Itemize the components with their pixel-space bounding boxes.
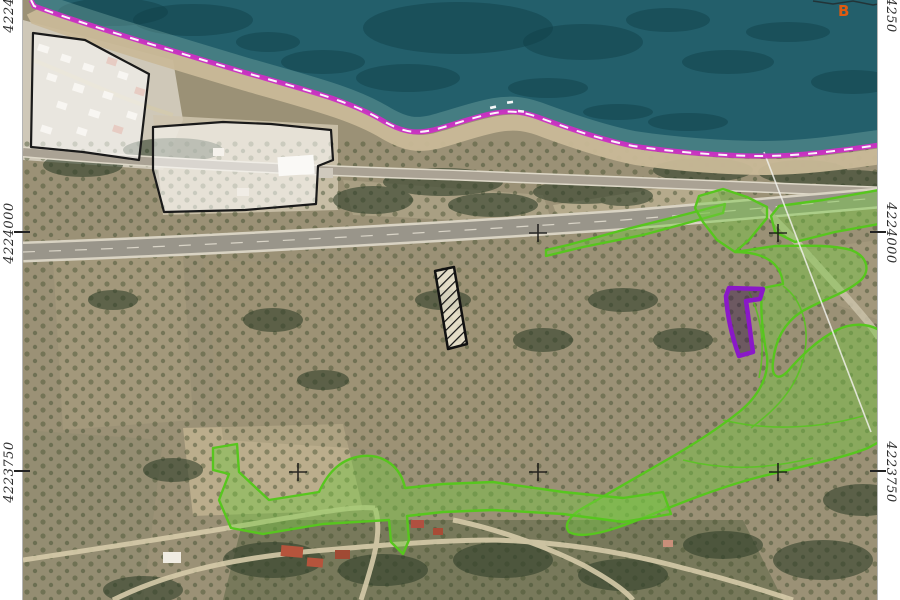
northing-label-right-bottom: 4223750 [883, 440, 897, 504]
grid-tick-right-bottom [870, 470, 886, 472]
northing-label-right-top: 4224250 [883, 0, 897, 34]
map-canvas: B [22, 0, 878, 600]
white-overlay-polygon-2 [153, 122, 333, 212]
grid-tick-right-mid [870, 231, 886, 233]
northing-label-left-bottom: 4223750 [3, 440, 17, 504]
northing-label-right-mid: 4224000 [883, 201, 897, 265]
map-graphics: B [23, 0, 878, 600]
northing-label-left-mid: 4224000 [3, 201, 17, 265]
point-b-label: B [838, 2, 849, 20]
map-sheet: B 4224250 4224000 4223750 4224250 422400… [0, 0, 900, 600]
grid-tick-left-bottom [14, 470, 30, 472]
northing-label-left-top: 4224250 [3, 0, 17, 34]
grid-tick-left-mid [14, 231, 30, 233]
